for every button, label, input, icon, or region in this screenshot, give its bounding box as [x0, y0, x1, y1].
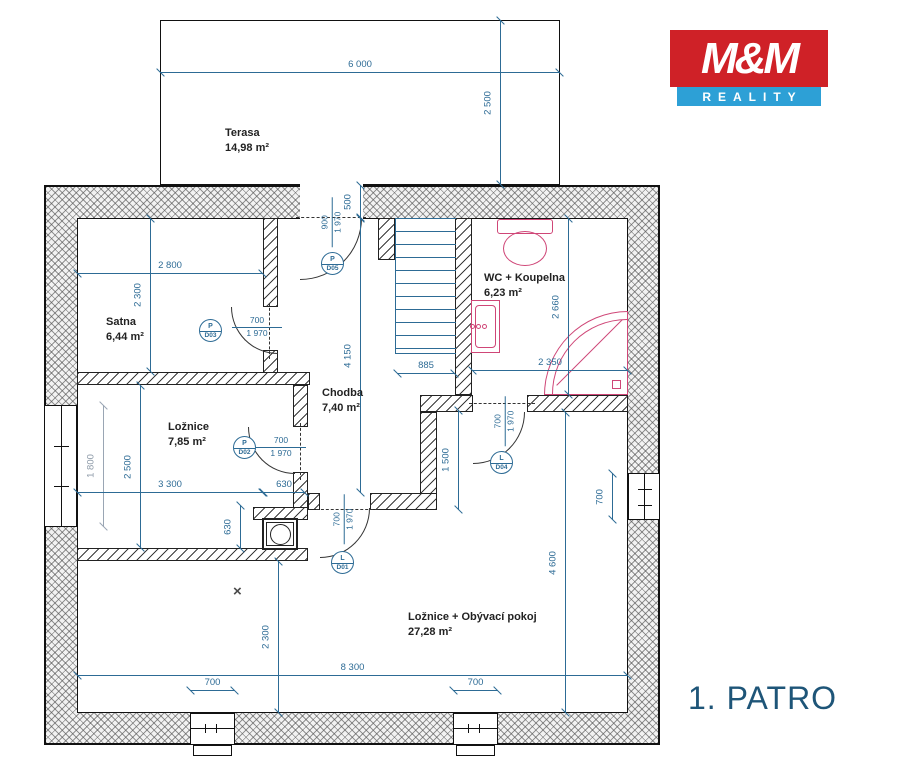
room-area: 14,98 m²	[225, 142, 269, 154]
wall	[378, 218, 395, 260]
dimension-loznice-height: 2 500	[140, 385, 141, 548]
room-name: Ložnice	[168, 421, 209, 433]
dimension-text: 8 300	[77, 662, 628, 673]
room-label-satna: Satna 6,44 m²	[106, 315, 144, 345]
window-tick	[205, 724, 206, 733]
door-hand: L	[491, 455, 512, 464]
door-code: D05	[322, 266, 343, 273]
window-frame-line	[454, 728, 497, 729]
dimension-text: 630	[263, 479, 305, 490]
toilet-bowl-icon	[503, 231, 547, 266]
flue-x-mark: ×	[233, 583, 242, 600]
dimension-window-left: 700	[190, 690, 235, 691]
door-code: D04	[491, 465, 512, 472]
door-hand: L	[332, 555, 353, 564]
room-name: WC + Koupelna	[484, 272, 565, 284]
staircase	[395, 218, 456, 354]
dimension-loznice-width: 3 300	[77, 492, 263, 493]
floor-title: 1. PATRO	[688, 680, 837, 717]
dimension-window-right: 700	[453, 690, 498, 691]
chimney-flue-icon	[270, 524, 291, 545]
dimension-text: 3 300	[77, 479, 263, 490]
room-label-loznice: Ložnice 7,85 m²	[168, 420, 209, 450]
dimension-living-width: 8 300	[77, 675, 628, 676]
wall	[527, 395, 628, 412]
door-size-d03: 700 1 970	[228, 316, 286, 339]
door-size-d01: 700 1 970	[333, 490, 356, 548]
dimension-text: 4 600	[547, 551, 558, 575]
door-width: 700	[250, 315, 264, 325]
mm-reality-logo-bar: REALITY	[677, 87, 821, 106]
dimension-text: 4 150	[342, 344, 353, 368]
door-tag-d03: P D03	[199, 319, 222, 342]
room-area: 7,85 m²	[168, 436, 206, 448]
window-south-left	[190, 713, 235, 745]
door-width: 700	[274, 435, 288, 445]
dimension-living-right-height: 4 600	[565, 412, 566, 713]
dimension-text: 2 350	[472, 357, 628, 368]
dimension-loznice-window: 1 800	[103, 405, 104, 527]
wall	[263, 218, 278, 307]
dimension-text: 1 500	[440, 448, 451, 472]
dimension-text: 700	[453, 677, 498, 688]
dimension-loznice-offset: 630	[263, 492, 305, 493]
door-size-d02: 700 1 970	[252, 436, 310, 459]
window-east	[628, 473, 660, 520]
window-tick	[479, 724, 480, 733]
window-south-right	[453, 713, 498, 745]
room-name: Terasa	[225, 127, 260, 139]
corner-bath-drain-icon	[612, 380, 621, 389]
room-name: Ložnice + Obývací pokoj	[408, 611, 537, 623]
dimension-terasa-depth: 2 500	[500, 20, 501, 185]
dimension-living-height: 2 300	[278, 561, 279, 713]
window-tick	[638, 489, 652, 490]
wall	[420, 395, 473, 412]
window-sill	[193, 745, 232, 756]
dimension-text: 500	[342, 194, 353, 210]
dimension-wc-height: 2 660	[568, 218, 569, 395]
dimension-text: 2 800	[77, 260, 263, 271]
wall	[420, 412, 437, 495]
door-hand: P	[200, 323, 221, 332]
wall	[370, 493, 437, 510]
window-tick	[54, 486, 69, 487]
dimension-satna-height: 2 300	[150, 218, 151, 372]
window-sill	[456, 745, 495, 756]
door-width: 700	[332, 512, 342, 526]
room-area: 7,40 m²	[322, 402, 360, 414]
room-label-chodba: Chodba 7,40 m²	[322, 386, 363, 416]
room-label-obyvaci: Ložnice + Obývací pokoj 27,28 m²	[408, 610, 537, 640]
dimension-text: 630	[222, 519, 233, 535]
dimension-hall-lower: 1 500	[458, 410, 459, 510]
window-tick	[54, 446, 69, 447]
door-hand: P	[322, 256, 343, 265]
window-tick	[468, 724, 469, 733]
door-code: D03	[200, 333, 221, 340]
room-area: 27,28 m²	[408, 626, 452, 638]
wall	[77, 372, 310, 385]
mm-reality-logo: M&M	[670, 30, 828, 87]
room-name: Satna	[106, 316, 136, 328]
dimension-loznice-offset-v: 630	[240, 505, 241, 549]
room-area: 6,23 m²	[484, 287, 522, 299]
room-label-wc: WC + Koupelna 6,23 m²	[484, 271, 565, 301]
logo-reality-text: REALITY	[695, 90, 802, 104]
dimension-text: 700	[594, 489, 605, 505]
window-west	[44, 405, 77, 527]
door-width: 900	[320, 215, 330, 229]
dimension-text: 2 300	[260, 625, 271, 649]
dimension-text: 2 500	[122, 455, 133, 479]
window-frame-line	[191, 728, 234, 729]
tap-icon	[482, 324, 487, 329]
dimension-text: 2 300	[132, 283, 143, 307]
room-area: 6,44 m²	[106, 331, 144, 343]
window-frame-line	[61, 406, 62, 526]
door-tag-d05: P D05	[321, 252, 344, 275]
wall	[308, 493, 320, 510]
window-frame-line	[644, 474, 645, 519]
dimension-satna-width: 2 800	[77, 273, 263, 274]
dimension-text: 1 800	[85, 454, 96, 478]
door-height: 1 970	[506, 411, 516, 432]
door-height: 1 970	[333, 212, 343, 233]
dimension-window-east: 700	[612, 473, 613, 520]
dimension-text: 700	[190, 677, 235, 688]
door-height: 1 970	[270, 448, 291, 458]
window-tick	[216, 724, 217, 733]
door-height: 1 970	[345, 509, 355, 530]
door-height: 1 970	[246, 328, 267, 338]
dimension-entry-offset: 500	[360, 185, 361, 218]
tap-icon	[476, 324, 481, 329]
room-name: Chodba	[322, 387, 363, 399]
dimension-wc-width: 2 350	[472, 370, 628, 371]
dimension-hall-height: 4 150	[360, 218, 361, 493]
window-tick	[638, 505, 652, 506]
tap-icon	[470, 324, 475, 329]
chimney	[262, 518, 298, 550]
door-size-d05: 900 1 970	[321, 193, 344, 251]
dimension-text: 2 500	[482, 91, 493, 115]
door-tag-d04: L D04	[490, 451, 513, 474]
dimension-text: 885	[397, 360, 455, 371]
door-size-d04: 700 1 970	[494, 392, 517, 450]
floor-plan: Terasa 14,98 m²	[0, 0, 902, 773]
door-tag-d01: L D01	[331, 551, 354, 574]
wall	[293, 385, 308, 427]
door-code: D01	[332, 565, 353, 572]
logo-mm-text: M&M	[701, 34, 797, 84]
door-width: 700	[493, 414, 503, 428]
room-label-terasa: Terasa 14,98 m²	[225, 126, 269, 156]
dimension-stair-width: 885	[397, 373, 455, 374]
